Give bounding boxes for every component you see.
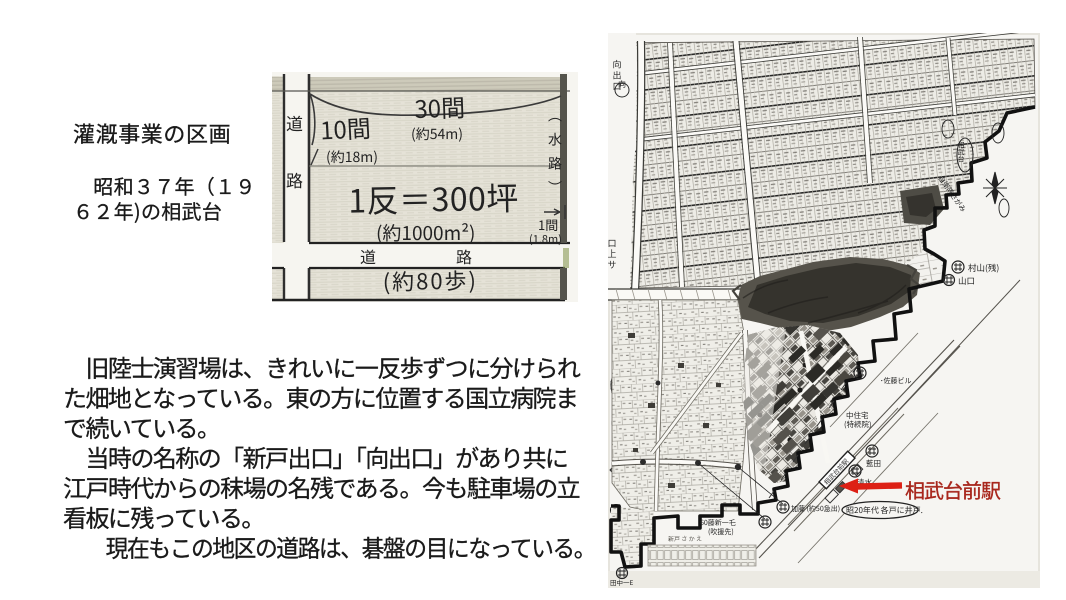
svg-text:加藤 (約50急出): 加藤 (約50急出)	[791, 504, 840, 514]
svg-text:藍田: 藍田	[866, 458, 881, 469]
svg-text:(約80歩): (約80歩)	[382, 263, 478, 297]
svg-text:30間: 30間	[414, 88, 466, 125]
svg-text:路: 路	[286, 167, 303, 192]
svg-text:（水路）: （水路）	[545, 108, 565, 204]
svg-text:田中一E: 田中一E	[610, 577, 634, 587]
svg-text:(1.8m): (1.8m)	[529, 231, 562, 247]
svg-text:山口: 山口	[958, 275, 975, 287]
svg-text:10間: 10間	[319, 109, 371, 147]
svg-text:･佐藤ビル: ･佐藤ビル	[880, 376, 912, 386]
svg-text:新戸 さ か え: 新戸 さ か え	[668, 534, 702, 543]
svg-text:道: 道	[360, 244, 376, 268]
svg-text:道: 道	[286, 110, 303, 135]
svg-text:(特続院): (特続院)	[844, 419, 872, 430]
svg-text:口上サ: 口上サ	[608, 238, 619, 271]
svg-text:(吹援先): (吹援先)	[708, 527, 734, 537]
svg-text:(約54m): (約54m)	[411, 124, 463, 144]
svg-text:(約18m): (約18m)	[326, 147, 378, 167]
svg-text:1反＝300坪: 1反＝300坪	[348, 174, 519, 223]
svg-text:昭20年代 各戸に井戸.: 昭20年代 各戸に井戸.	[846, 505, 923, 516]
svg-text:相武台: 相武台	[956, 141, 966, 162]
svg-text:向: 向	[618, 79, 626, 90]
svg-text:村山(残): 村山(残)	[968, 262, 999, 274]
svg-text:(約1000m²): (約1000m²)	[376, 219, 475, 246]
